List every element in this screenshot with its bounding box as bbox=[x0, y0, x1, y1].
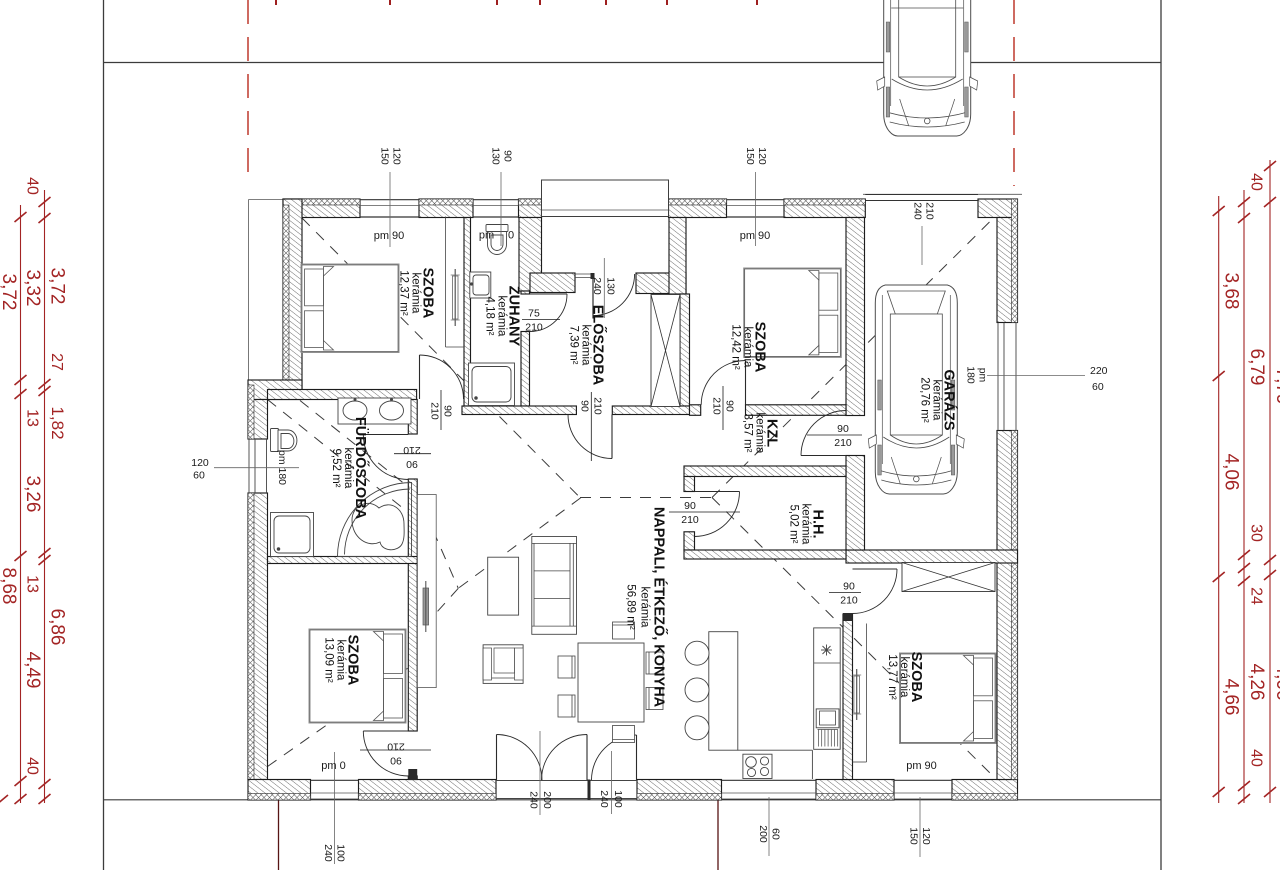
svg-text:90: 90 bbox=[843, 581, 855, 593]
svg-text:90: 90 bbox=[723, 400, 735, 412]
svg-text:40: 40 bbox=[1248, 749, 1265, 767]
svg-text:240: 240 bbox=[527, 791, 539, 809]
svg-text:kerámia: kerámia bbox=[496, 296, 508, 338]
svg-text:200: 200 bbox=[757, 825, 769, 843]
svg-text:kerámia: kerámia bbox=[931, 380, 943, 422]
svg-text:150: 150 bbox=[907, 827, 919, 845]
svg-text:130: 130 bbox=[489, 147, 501, 165]
svg-text:120: 120 bbox=[191, 457, 209, 469]
svg-text:120: 120 bbox=[390, 147, 402, 165]
svg-text:kerámia: kerámia bbox=[335, 640, 347, 682]
svg-text:90: 90 bbox=[406, 458, 418, 470]
svg-text:150: 150 bbox=[744, 147, 756, 165]
svg-text:3,32: 3,32 bbox=[22, 270, 43, 307]
svg-text:210: 210 bbox=[834, 437, 852, 449]
svg-text:NAPPALI, ÉTKEZŐ, KONYHA: NAPPALI, ÉTKEZŐ, KONYHA bbox=[651, 507, 669, 708]
svg-text:pm: pm bbox=[479, 230, 494, 242]
svg-text:4,26: 4,26 bbox=[1246, 664, 1267, 701]
svg-text:30: 30 bbox=[1248, 524, 1265, 542]
svg-text:5,02 m²: 5,02 m² bbox=[788, 505, 800, 544]
svg-text:13: 13 bbox=[24, 575, 41, 593]
svg-text:kerámia: kerámia bbox=[410, 273, 422, 315]
svg-text:12,37 m²: 12,37 m² bbox=[398, 270, 410, 316]
svg-text:4,06: 4,06 bbox=[1272, 664, 1280, 701]
svg-text:150: 150 bbox=[378, 147, 390, 165]
svg-text:4,49: 4,49 bbox=[22, 652, 43, 689]
svg-text:210: 210 bbox=[710, 397, 722, 415]
svg-text:90: 90 bbox=[579, 400, 591, 412]
svg-text:3,68: 3,68 bbox=[1221, 273, 1242, 310]
svg-text:20,76 m²: 20,76 m² bbox=[919, 377, 931, 423]
svg-text:pm 0: pm 0 bbox=[321, 760, 345, 772]
svg-text:40: 40 bbox=[1248, 173, 1265, 191]
svg-text:60: 60 bbox=[193, 470, 205, 482]
svg-text:1,82: 1,82 bbox=[48, 406, 67, 439]
svg-text:kerámia: kerámia bbox=[754, 413, 766, 455]
svg-text:6,86: 6,86 bbox=[46, 609, 67, 646]
svg-text:210: 210 bbox=[923, 202, 935, 220]
svg-text:pm: pm bbox=[977, 368, 989, 383]
svg-text:7,79: 7,79 bbox=[1272, 368, 1280, 405]
svg-text:75: 75 bbox=[528, 308, 540, 320]
svg-text:pm 90: pm 90 bbox=[906, 760, 937, 772]
svg-text:24: 24 bbox=[1248, 587, 1265, 605]
svg-text:240: 240 bbox=[591, 277, 603, 295]
svg-text:27: 27 bbox=[48, 353, 65, 371]
svg-text:90: 90 bbox=[684, 500, 696, 512]
svg-text:13,09 m²: 13,09 m² bbox=[323, 637, 335, 683]
svg-text:56,89 m²: 56,89 m² bbox=[625, 584, 637, 630]
svg-text:7,39 m²: 7,39 m² bbox=[568, 326, 580, 365]
svg-text:kerámia: kerámia bbox=[742, 327, 754, 369]
svg-text:210: 210 bbox=[525, 322, 543, 334]
svg-text:kerámia: kerámia bbox=[342, 448, 354, 490]
svg-text:pm 180: pm 180 bbox=[276, 450, 288, 485]
svg-text:210: 210 bbox=[428, 402, 440, 420]
svg-text:3,72: 3,72 bbox=[0, 274, 19, 311]
svg-text:100: 100 bbox=[334, 844, 346, 862]
svg-text:200: 200 bbox=[541, 791, 553, 809]
svg-text:100: 100 bbox=[612, 790, 624, 808]
svg-text:90: 90 bbox=[501, 150, 513, 162]
svg-text:210: 210 bbox=[403, 444, 421, 456]
svg-text:240: 240 bbox=[322, 844, 334, 862]
svg-text:220: 220 bbox=[1090, 365, 1108, 377]
svg-text:90: 90 bbox=[837, 423, 849, 435]
svg-text:4,66: 4,66 bbox=[1221, 679, 1242, 716]
svg-text:pm 90: pm 90 bbox=[740, 230, 771, 242]
svg-text:40: 40 bbox=[24, 757, 41, 775]
svg-text:210: 210 bbox=[387, 740, 405, 752]
svg-text:3,26: 3,26 bbox=[22, 476, 43, 513]
svg-text:kerámia: kerámia bbox=[898, 657, 910, 699]
svg-text:4,18 m²: 4,18 m² bbox=[484, 297, 496, 336]
svg-text:90: 90 bbox=[441, 405, 453, 417]
svg-text:40: 40 bbox=[24, 177, 41, 195]
svg-text:210: 210 bbox=[840, 595, 858, 607]
svg-text:60: 60 bbox=[769, 828, 781, 840]
svg-text:12,42 m²: 12,42 m² bbox=[730, 324, 742, 370]
svg-text:90: 90 bbox=[390, 754, 402, 766]
svg-text:4,06: 4,06 bbox=[1221, 454, 1242, 491]
svg-text:pm 90: pm 90 bbox=[374, 230, 405, 242]
svg-text:13: 13 bbox=[24, 409, 41, 427]
svg-text:240: 240 bbox=[911, 202, 923, 220]
svg-text:13,77 m²: 13,77 m² bbox=[886, 654, 898, 700]
svg-text:3,57 m²: 3,57 m² bbox=[742, 414, 754, 453]
svg-text:180: 180 bbox=[965, 366, 977, 384]
svg-text:60: 60 bbox=[1092, 381, 1104, 393]
svg-text:120: 120 bbox=[920, 827, 932, 845]
svg-text:0: 0 bbox=[508, 230, 514, 242]
svg-text:240: 240 bbox=[598, 790, 610, 808]
svg-text:210: 210 bbox=[592, 397, 604, 415]
svg-text:kerámia: kerámia bbox=[580, 325, 592, 367]
svg-text:120: 120 bbox=[756, 147, 768, 165]
svg-text:kerámia: kerámia bbox=[639, 587, 651, 629]
svg-text:kerámia: kerámia bbox=[800, 504, 812, 546]
svg-text:6,79: 6,79 bbox=[1246, 349, 1267, 386]
svg-text:8,68: 8,68 bbox=[0, 568, 19, 605]
svg-text:210: 210 bbox=[681, 514, 699, 526]
svg-text:9,52 m²: 9,52 m² bbox=[330, 449, 342, 488]
svg-text:3,72: 3,72 bbox=[46, 268, 67, 305]
svg-text:130: 130 bbox=[604, 277, 616, 295]
